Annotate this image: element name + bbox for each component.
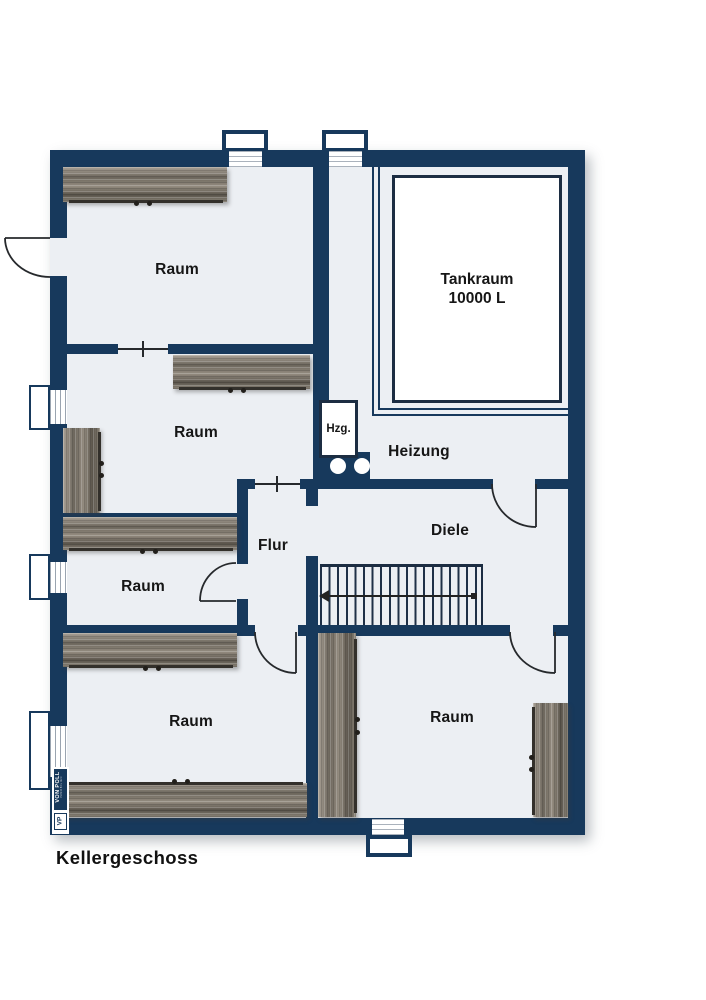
wall-raum1-raum2-right (168, 344, 313, 354)
knob (153, 549, 158, 554)
hzg-box: Hzg. (319, 400, 358, 458)
wall-flur-right-lower (306, 556, 318, 818)
room-label-raum-bottom-right: Raum (430, 709, 474, 727)
wall-flur-left-lower (237, 599, 248, 636)
room-label-raum-top-left: Raum (155, 261, 199, 279)
wall-flur-right-upper (306, 479, 318, 506)
wall-raum1-raum2-left (67, 344, 118, 354)
sideboard-edge (69, 665, 233, 668)
tankraum-label: Tankraum (441, 270, 514, 289)
wall-heizung-diele (300, 479, 493, 489)
knob (99, 473, 104, 478)
hzg-label: Hzg. (326, 423, 350, 435)
knob (134, 201, 139, 206)
room-label-heizung: Heizung (388, 443, 450, 461)
sideboard-raum4-bottom (63, 783, 307, 817)
vent-box-bottom (366, 835, 412, 857)
passage-tick (276, 476, 278, 492)
wall-flur-left-upper (237, 479, 248, 564)
cabinet-edge (354, 639, 357, 813)
sideboard-edge (69, 548, 233, 551)
knob (140, 549, 145, 554)
knob (529, 755, 534, 760)
stair-direction-line (327, 595, 475, 597)
sideboard-raum4-top (63, 633, 237, 667)
sideboard-raum2-top (173, 355, 310, 389)
window-glazing-raum2 (50, 390, 67, 424)
room-label-flur: Flur (258, 537, 288, 555)
knob (99, 461, 104, 466)
shaft-box-top-right (322, 130, 368, 152)
window-glazing-raum3 (50, 562, 67, 593)
room-label-raum-mid-left: Raum (174, 424, 218, 442)
window-box-raum3 (29, 554, 50, 600)
room-label-diele: Diele (431, 522, 469, 540)
cabinet-raum2-left (63, 428, 100, 513)
passage-tick (142, 341, 144, 357)
stair-direction-arrowhead (319, 590, 329, 602)
knob (355, 717, 360, 722)
knob (529, 767, 534, 772)
wall-exterior-top (50, 150, 585, 167)
flue-circle-right (354, 458, 370, 474)
brand-logo-text: VON POLL IMMOBILIEN (56, 771, 64, 802)
vent-hatch-bottom (372, 819, 404, 835)
knob (143, 666, 148, 671)
sideboard-edge (69, 200, 223, 203)
wall-mid-bottom-right (553, 625, 585, 636)
tank-box: Tankraum 10000 L (392, 175, 562, 403)
room-label-raum-lower-left: Raum (121, 578, 165, 596)
window-box-raum4 (29, 711, 50, 790)
flue-circle-left (330, 458, 346, 474)
knob (185, 779, 190, 784)
cabinet-edge (532, 707, 535, 815)
window-box-raum2 (29, 385, 50, 430)
knob (228, 388, 233, 393)
knob (156, 666, 161, 671)
door-arc-entrance (5, 238, 50, 277)
cabinet-raum5-left (318, 633, 356, 817)
cabinet-raum5-right (533, 703, 568, 817)
cabinet-edge (98, 432, 101, 511)
knob (172, 779, 177, 784)
shaft-hatch-top-right (329, 151, 362, 167)
sideboard-raum1 (63, 167, 227, 202)
shaft-box-top-left (222, 130, 268, 152)
knob (355, 730, 360, 735)
wall-exterior-right (568, 150, 585, 835)
stair-direction-start-dot (471, 593, 477, 599)
wall-heizung-diele-stub (535, 479, 585, 489)
brand-monogram: VP (57, 817, 64, 826)
tankraum-capacity-label: 10000 L (449, 289, 506, 308)
knob (241, 388, 246, 393)
floor-title: Kellergeschoss (56, 847, 198, 869)
knob (147, 201, 152, 206)
wall-exterior-bottom (50, 818, 585, 835)
shaft-hatch-top-left (229, 151, 262, 167)
sideboard-raum3 (63, 517, 237, 550)
room-label-raum-bottom-left: Raum (169, 713, 213, 731)
floorplan-page: Tankraum 10000 L Hzg. (0, 0, 706, 1000)
